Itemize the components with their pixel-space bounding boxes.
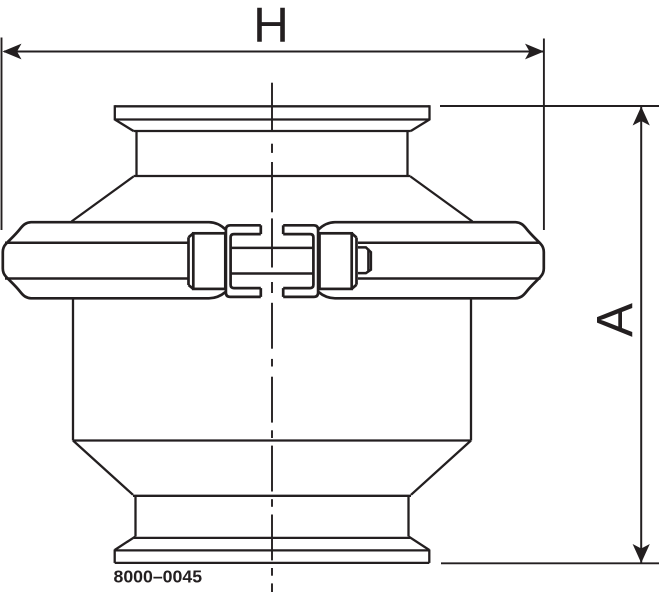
svg-text:8000–0045: 8000–0045	[114, 567, 203, 587]
svg-text:A: A	[587, 303, 644, 337]
svg-text:H: H	[253, 0, 289, 53]
